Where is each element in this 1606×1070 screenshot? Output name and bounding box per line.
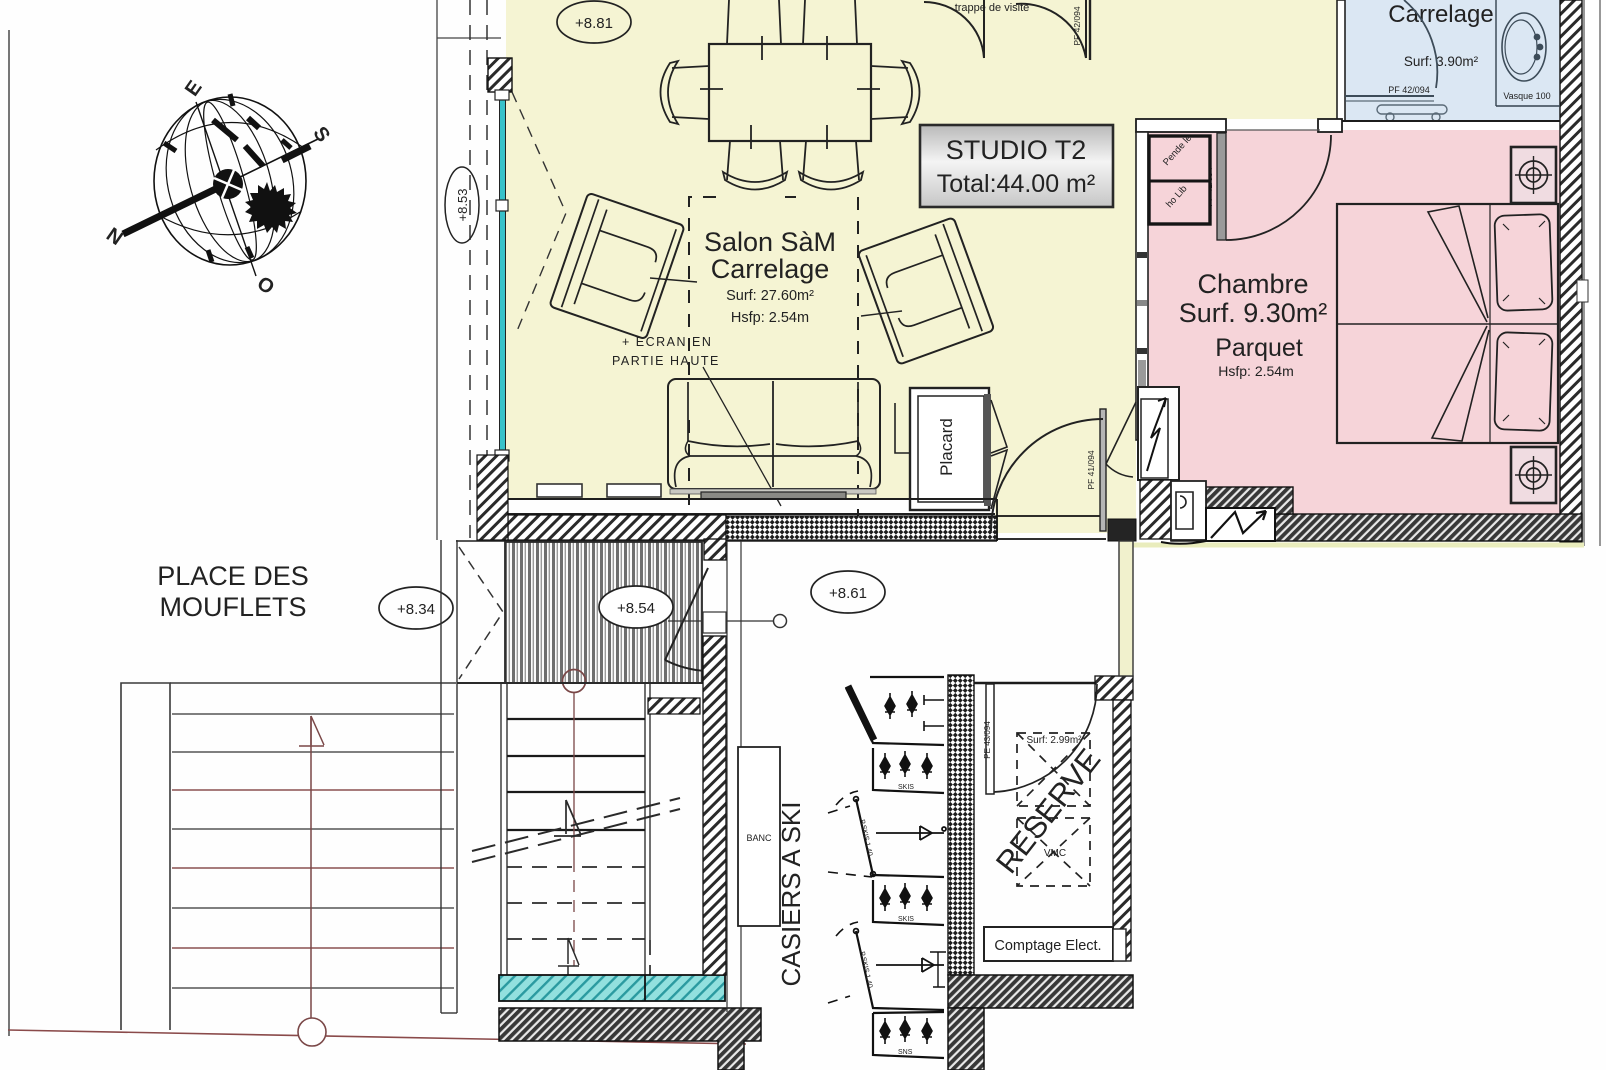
svg-text:+8.81: +8.81 xyxy=(575,15,613,32)
svg-text:+8.54: +8.54 xyxy=(617,600,655,617)
svg-text:PF 42/094: PF 42/094 xyxy=(1388,85,1430,95)
svg-text:Carrelage: Carrelage xyxy=(711,254,830,284)
svg-text:SKIS: SKIS xyxy=(898,916,914,923)
svg-text:Chambre: Chambre xyxy=(1197,269,1308,299)
svg-text:+8.53: +8.53 xyxy=(455,189,470,222)
svg-text:Comptage Elect.: Comptage Elect. xyxy=(994,938,1101,954)
svg-text:MOUFLETS: MOUFLETS xyxy=(159,592,306,622)
svg-text:Placard: Placard xyxy=(937,418,956,476)
svg-text:PF 41/094: PF 41/094 xyxy=(1086,450,1096,489)
svg-text:+8.34: +8.34 xyxy=(397,601,435,618)
svg-text:PARTIE HAUTE: PARTIE HAUTE xyxy=(612,354,720,368)
svg-text:VMC: VMC xyxy=(1044,848,1066,859)
svg-text:Hsfp: 2.54m: Hsfp: 2.54m xyxy=(731,310,809,326)
svg-text:STUDIO T2: STUDIO T2 xyxy=(946,135,1087,165)
svg-text:PF 42/094: PF 42/094 xyxy=(1072,6,1082,45)
svg-text:PE 43/094: PE 43/094 xyxy=(983,721,992,759)
svg-text:PLACE DES: PLACE DES xyxy=(157,561,309,591)
svg-text:+8.61: +8.61 xyxy=(829,585,867,602)
svg-text:Parquet: Parquet xyxy=(1215,334,1303,362)
svg-text:SNS: SNS xyxy=(898,1049,913,1056)
svg-text:Salon SàM: Salon SàM xyxy=(704,227,836,257)
svg-text:Total:44.00 m²: Total:44.00 m² xyxy=(937,170,1095,198)
svg-text:Surf: 2.99m²: Surf: 2.99m² xyxy=(1026,735,1082,746)
svg-text:+ ECRAN EN: + ECRAN EN xyxy=(622,335,712,349)
svg-text:Surf: 3.90m²: Surf: 3.90m² xyxy=(1404,54,1479,69)
svg-text:CASIERS A SKI: CASIERS A SKI xyxy=(776,802,806,987)
svg-text:Surf: 27.60m²: Surf: 27.60m² xyxy=(726,288,814,304)
svg-text:Vasque 100: Vasque 100 xyxy=(1503,91,1550,101)
svg-text:Surf. 9.30m²: Surf. 9.30m² xyxy=(1179,298,1328,328)
svg-text:SKIS: SKIS xyxy=(898,784,914,791)
svg-text:Hsfp: 2.54m: Hsfp: 2.54m xyxy=(1218,363,1293,379)
svg-text:BANC: BANC xyxy=(746,833,772,843)
svg-text:Carrelage: Carrelage xyxy=(1388,1,1493,28)
